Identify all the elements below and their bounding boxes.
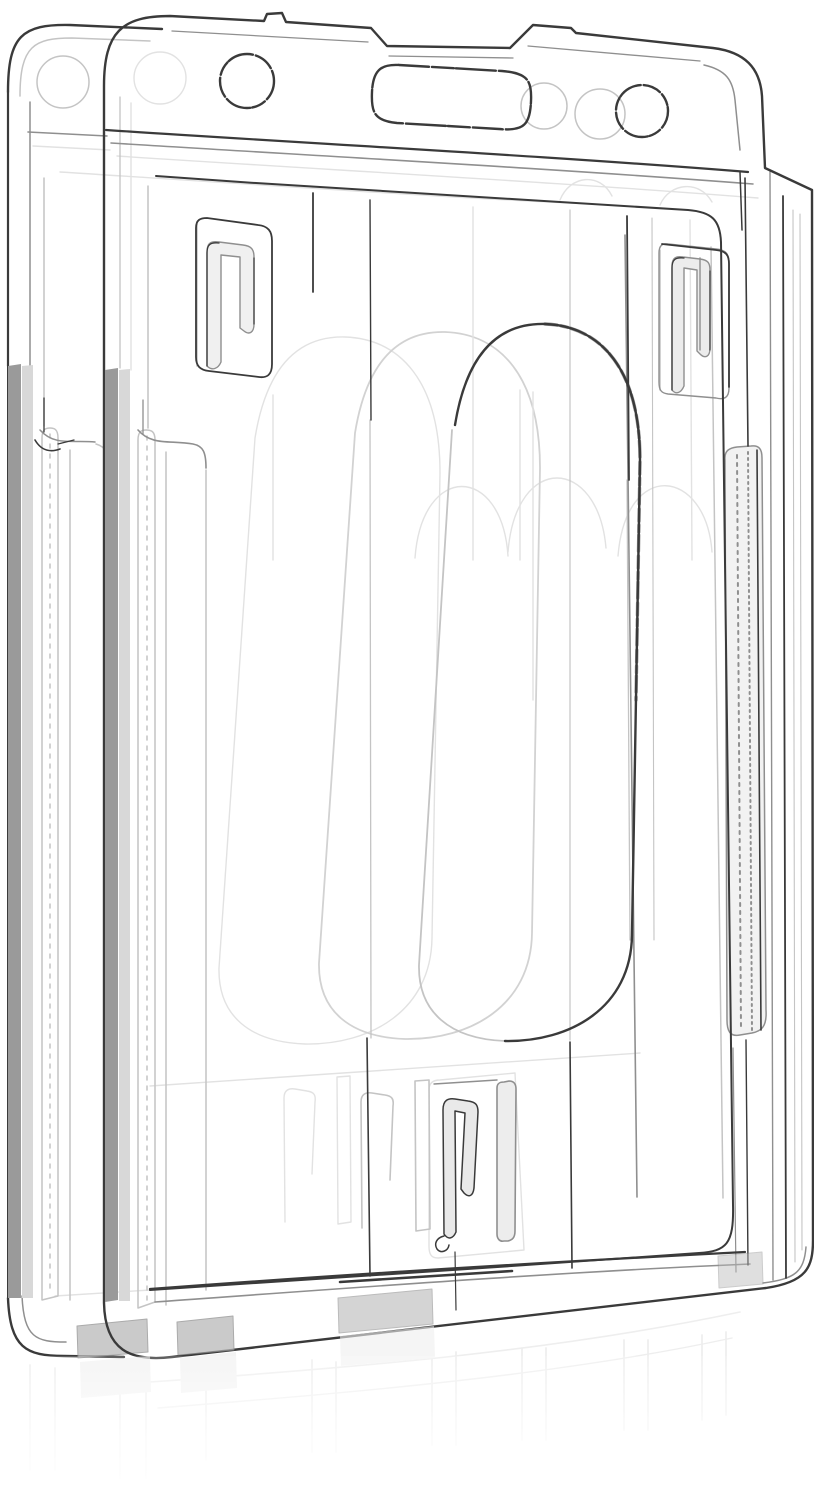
bottom-hook — [443, 1099, 478, 1238]
card-ledge-curve — [138, 430, 206, 468]
product-photo-canvas — [0, 0, 814, 1500]
ghost-thumb-slot-outer — [219, 337, 440, 1044]
back-holder-mid-lines — [22, 102, 107, 1342]
inner-frame-double-right — [711, 247, 723, 1198]
notch-shadow — [389, 56, 513, 58]
bottom-hook-stem — [455, 1252, 456, 1310]
lanyard-hole-ghost — [521, 83, 567, 129]
ghost-bottom-hook — [284, 1089, 315, 1222]
bottom-hook-bar — [497, 1081, 516, 1241]
ghost-scallop-arc — [508, 478, 606, 552]
right-rail-lower-line — [733, 1048, 736, 1272]
interior-ridge-dark — [370, 200, 371, 420]
front-holder-dark-lines — [104, 13, 813, 1358]
card-ledge-curve — [40, 430, 95, 442]
ghost-bottom-hook-bar — [337, 1076, 351, 1224]
right-edge-line — [793, 210, 795, 1262]
side-wall-light-bar — [22, 365, 33, 1298]
holder-outline-top — [8, 25, 162, 92]
bottom-corner-inner — [22, 1296, 66, 1342]
lanyard-hole-ghost — [37, 56, 89, 108]
foot-tab — [177, 1316, 234, 1355]
badge-holders-illustration — [0, 0, 814, 1500]
faint-arc-right-band — [560, 180, 612, 200]
hook-left-inner — [207, 242, 254, 369]
right-edge-line — [770, 172, 773, 1280]
faint-arc-right-band — [660, 187, 712, 205]
lanyard-slot — [372, 65, 531, 130]
side-wall-gray-bar — [105, 368, 118, 1302]
right-vertical-line — [745, 178, 748, 446]
bottom-hook-frame-top — [434, 1080, 497, 1084]
ghost-scallop-arc — [618, 486, 712, 556]
ghost-bottom-ledge — [150, 1053, 640, 1086]
right-strip-tick — [740, 172, 742, 230]
bottom-hook-curl — [436, 1236, 449, 1252]
ghost-scallop-arc — [415, 487, 508, 559]
interior-ridge — [370, 420, 371, 1038]
right-vertical-line — [746, 1040, 748, 1265]
lanyard-hole-left — [220, 54, 274, 108]
ghost-band-line — [33, 146, 110, 150]
inner-frame — [150, 176, 733, 1290]
side-wall-light-bar — [119, 369, 130, 1301]
lanyard-hole-ghost — [575, 89, 625, 139]
top-edge-inner — [172, 31, 368, 42]
lanyard-hole-ghost — [134, 52, 186, 104]
front-badge-holder — [104, 13, 813, 1358]
thumb-slot-speckle — [545, 324, 640, 700]
ghost-thumb-slot — [319, 332, 540, 1039]
foot-tab — [718, 1252, 763, 1288]
lanyard-hole-right — [616, 85, 668, 137]
interior-ridge — [652, 218, 654, 940]
rail-top-notch — [35, 440, 60, 451]
band-bottom-sliver — [28, 132, 107, 136]
reflection-fade-overlay — [0, 1356, 814, 1500]
top-edge-inner — [528, 46, 700, 61]
side-wall-gray-bar — [8, 364, 21, 1298]
ghost-bottom-hook-bar — [415, 1080, 430, 1231]
ghost-bottom-hook — [361, 1093, 393, 1228]
right-edge-line — [800, 214, 802, 1250]
interior-ridge-dark — [570, 1042, 572, 1268]
interior-ridge — [690, 220, 692, 560]
right-strip-edge — [783, 196, 786, 1278]
thumb-slot — [455, 324, 640, 1041]
back-holder-ghost-lines — [33, 146, 712, 1296]
foot-tab — [338, 1289, 433, 1333]
band-line-2 — [111, 143, 753, 184]
interior-ridge-dark — [367, 1038, 370, 1276]
top-right-corner-inner — [704, 65, 740, 150]
